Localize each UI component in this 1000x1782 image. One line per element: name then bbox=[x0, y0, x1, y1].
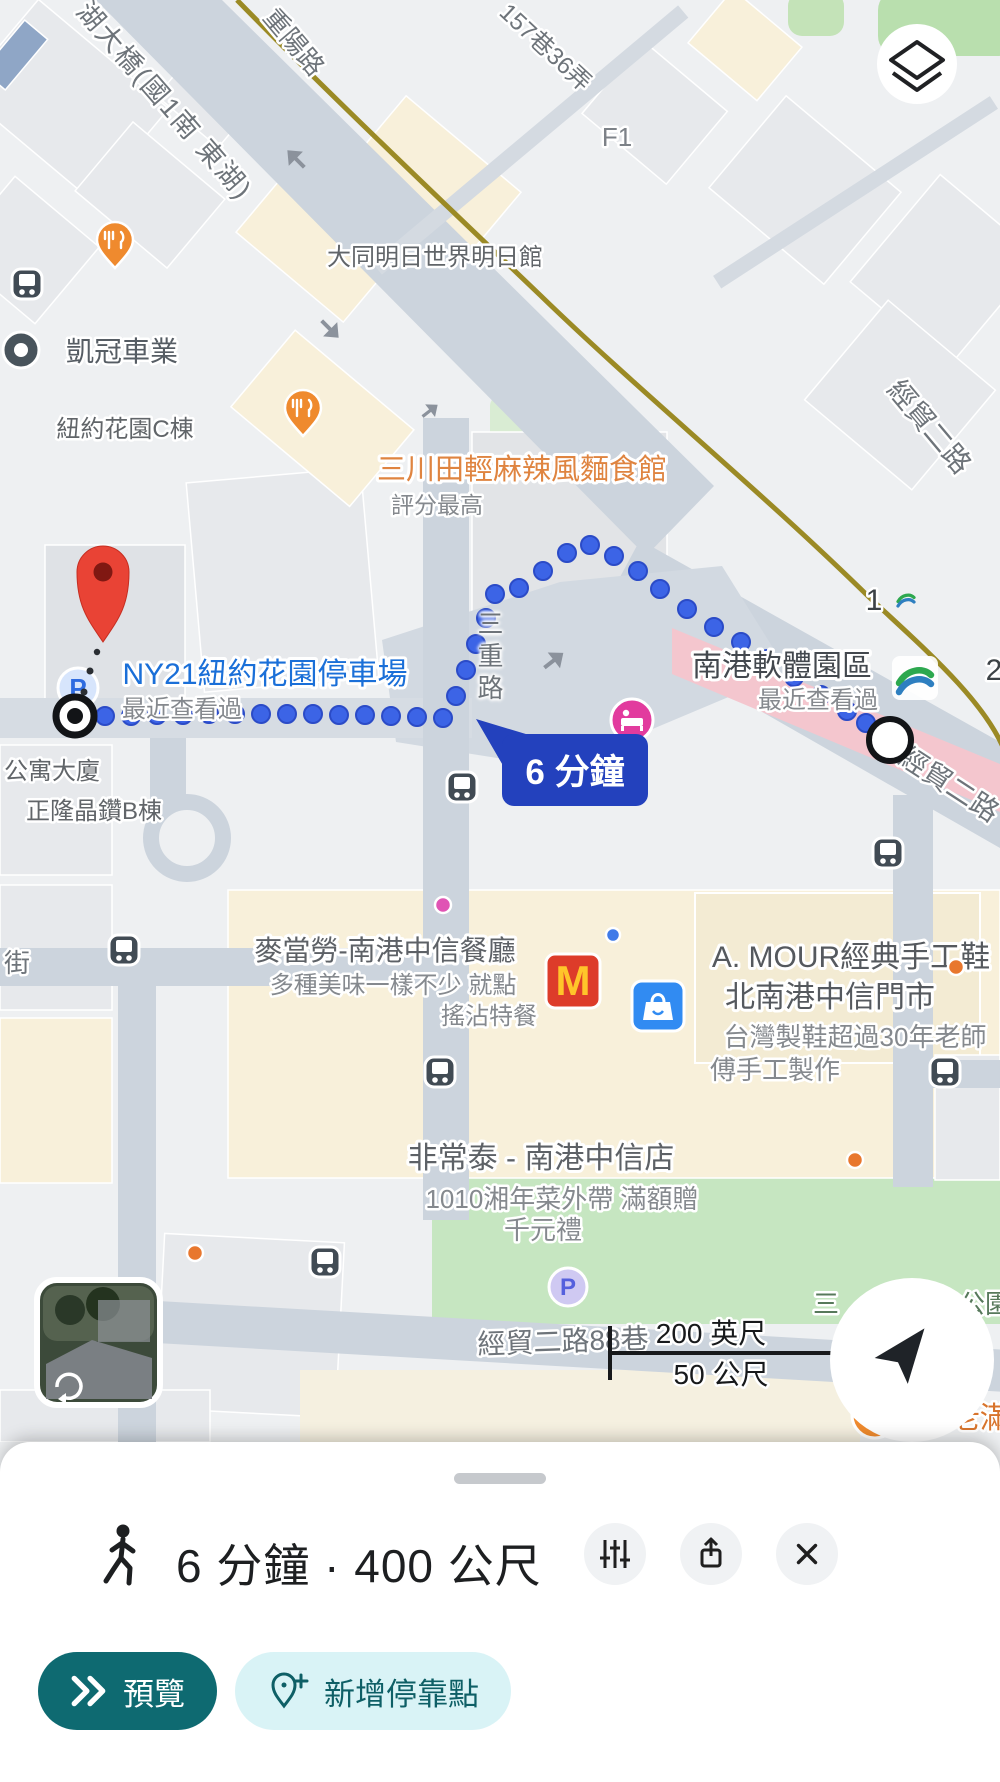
route-end-marker[interactable] bbox=[869, 719, 911, 761]
poi-sublabel-sanchuantian: 評分最高 bbox=[391, 492, 483, 518]
poi-label-ny-garden-c: 紐約花園C棟 bbox=[56, 416, 193, 443]
poi-label-sanchuantian: 三川田輕麻辣風麵食館 bbox=[377, 453, 667, 486]
mcdonalds-icon: M bbox=[546, 954, 600, 1008]
route-options-button[interactable] bbox=[584, 1523, 646, 1585]
scale-imperial: 200 英尺 bbox=[656, 1318, 767, 1349]
orange-dot bbox=[847, 1152, 863, 1168]
add-stop-pin-icon bbox=[267, 1670, 309, 1712]
svg-text:M: M bbox=[556, 957, 591, 1004]
walk-icon bbox=[98, 1522, 148, 1586]
bus-stop-icon bbox=[109, 935, 139, 965]
close-icon bbox=[790, 1537, 824, 1571]
poi-ad-amour-2: 傅手工製作 bbox=[710, 1055, 840, 1085]
bus-stop-icon bbox=[447, 772, 477, 802]
poi-ad-feichangtai-2: 千元禮 bbox=[504, 1215, 582, 1245]
double-chevron-icon bbox=[70, 1675, 108, 1707]
poi-label-software-park: 南港軟體園區 bbox=[692, 650, 872, 683]
svg-text:P: P bbox=[560, 1274, 576, 1301]
route-summary: 6 分鐘 · 400 公尺 bbox=[176, 1530, 542, 1596]
bus-stop-icon bbox=[310, 1247, 340, 1277]
poi-label-datong: 大同明日世界明日館 bbox=[327, 244, 543, 271]
maps-app: 湖大橋(國1南 東湖) 重陽路 157巷36弄 經貿二路 經貿二路 經貿二路88… bbox=[0, 0, 1000, 1782]
road-label-sanchong: 三重路 bbox=[471, 610, 508, 706]
map-canvas[interactable]: 湖大橋(國1南 東湖) 重陽路 157巷36弄 經貿二路 經貿二路 經貿二路88… bbox=[0, 0, 1000, 1442]
poi-ad-amour-1: 台灣製鞋超過30年老師 bbox=[724, 1022, 987, 1052]
pink-dot bbox=[435, 897, 451, 913]
poi-label-zhenglong: 正隆晶鑽B棟 bbox=[26, 798, 162, 825]
poi-label-mcdonalds: 麥當勞-南港中信餐廳 bbox=[254, 935, 515, 966]
preview-button[interactable]: 預覽 bbox=[38, 1652, 217, 1730]
poi-ad-mcdonalds-1: 多種美味一樣不少 就點 bbox=[270, 972, 517, 999]
bus-stop-icon bbox=[12, 269, 42, 299]
orange-dot bbox=[187, 1245, 203, 1261]
road-label-street: 街 bbox=[4, 948, 30, 978]
park-label-fragment-left: 三 bbox=[813, 1289, 839, 1319]
poi-label-amour-2: 北南港中信門市 bbox=[725, 981, 935, 1014]
station-exit-1: 1 bbox=[866, 584, 883, 617]
poi-label-apartment: 公寓大廈 bbox=[4, 758, 100, 785]
shopping-bag-icon bbox=[632, 981, 684, 1031]
share-icon bbox=[693, 1536, 729, 1572]
blue-dot bbox=[606, 928, 620, 942]
add-stop-button-label: 新增停靠點 bbox=[324, 1669, 479, 1714]
poi-label-ny21-parking: NY21紐約花園停車場 bbox=[122, 658, 407, 691]
park-parking-icon: P bbox=[549, 1268, 587, 1306]
street-view-thumbnail[interactable] bbox=[37, 1280, 160, 1405]
share-button[interactable] bbox=[680, 1523, 742, 1585]
add-stop-button[interactable]: 新增停靠點 bbox=[235, 1652, 511, 1730]
poi-label-feichangtai: 非常泰 - 南港中信店 bbox=[408, 1142, 675, 1175]
scale-metric: 50 公尺 bbox=[674, 1359, 769, 1390]
poi-label-kaiguan: 凱冠車業 bbox=[66, 336, 178, 367]
preview-button-label: 預覽 bbox=[123, 1669, 185, 1714]
drag-handle[interactable] bbox=[454, 1473, 546, 1484]
directions-bottom-sheet: 6 分鐘 · 400 公尺 預覽 新增停靠 bbox=[0, 1442, 1000, 1782]
poi-sublabel-software-park: 最近查看過 bbox=[758, 687, 878, 714]
route-start-marker[interactable] bbox=[56, 697, 94, 735]
poi-label-f1: F1 bbox=[602, 122, 632, 152]
route-duration-label: 6 分鐘 bbox=[525, 752, 624, 792]
orange-dot bbox=[948, 959, 964, 975]
bus-stop-icon bbox=[930, 1057, 960, 1087]
station-exit-2: 2 bbox=[986, 654, 1000, 687]
bus-stop-icon bbox=[873, 838, 903, 868]
close-button[interactable] bbox=[776, 1523, 838, 1585]
my-location-button[interactable] bbox=[830, 1278, 994, 1442]
car-shop-icon bbox=[3, 332, 39, 368]
poi-ad-mcdonalds-2: 搖沾特餐 bbox=[441, 1003, 537, 1030]
poi-sublabel-ny21: 最近查看過 bbox=[122, 696, 242, 723]
tune-icon bbox=[597, 1536, 633, 1572]
layers-button[interactable] bbox=[877, 24, 957, 104]
poi-ad-feichangtai-1: 1010湘年菜外帶 滿額贈 bbox=[425, 1184, 698, 1214]
bus-stop-icon bbox=[425, 1057, 455, 1087]
